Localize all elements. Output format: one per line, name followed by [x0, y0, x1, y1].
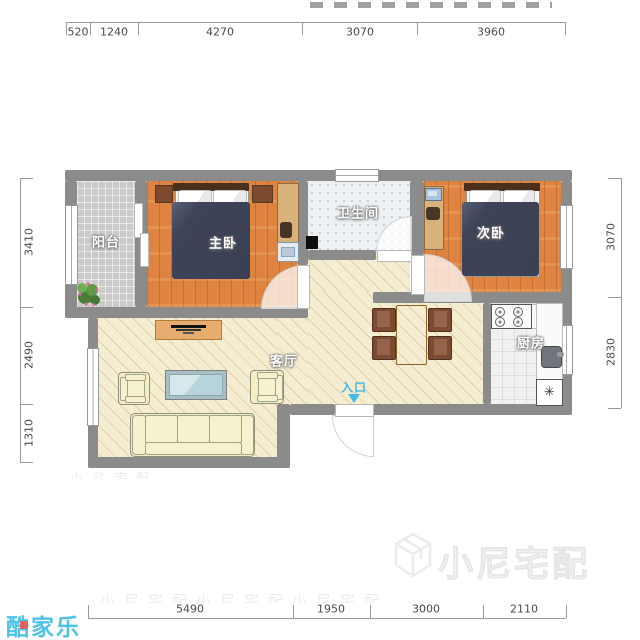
second-bedroom-label: 次卧: [477, 223, 505, 242]
kitchen-label: 厨房: [517, 333, 545, 352]
burner: [513, 307, 523, 317]
dim-tick: [293, 605, 294, 618]
armchair[interactable]: [118, 372, 150, 405]
dim-line-right: [621, 178, 622, 408]
dim-value: 1310: [23, 419, 36, 447]
sofa-cushion: [177, 415, 210, 443]
balcony-sliding-door-panel[interactable]: [140, 233, 149, 267]
computer-screen: [428, 191, 437, 196]
sofa-cushion: [209, 415, 242, 443]
dim-value: 3070: [605, 223, 618, 251]
bedroom2-desk-chair[interactable]: [426, 207, 440, 220]
dining-chair[interactable]: [428, 336, 452, 360]
chair-seat: [434, 311, 447, 327]
dim-tick: [88, 605, 89, 618]
dim-value: 3070: [346, 26, 374, 39]
dim-tick: [302, 22, 303, 35]
dim-tick: [20, 307, 33, 308]
bedroom2-door[interactable]: [411, 255, 425, 295]
dim-tick: [483, 605, 484, 618]
dim-value: 1240: [100, 26, 128, 39]
plant[interactable]: [76, 278, 102, 308]
master-bed[interactable]: [172, 183, 250, 279]
wall-living-bottom: [88, 457, 290, 468]
balcony-window[interactable]: [65, 205, 78, 285]
faucet: [557, 352, 564, 357]
tv-line: [176, 329, 201, 331]
dim-line-top: [66, 22, 565, 23]
bathroom-label: 卫生间: [337, 203, 379, 222]
dim-tick: [20, 178, 33, 179]
dim-value: 2830: [605, 338, 618, 366]
burner: [495, 317, 505, 327]
wall-kitchen-left: [483, 303, 491, 404]
bathroom-door[interactable]: [377, 250, 412, 262]
chair-seat: [434, 339, 447, 355]
wall-bottom-left-of-entry: [290, 404, 335, 415]
nightstand[interactable]: [155, 185, 173, 203]
chair-seat: [377, 311, 390, 327]
dim-value: 520: [68, 26, 89, 39]
overlay-watermark: 小尼宅配: [392, 530, 592, 582]
tv: [171, 325, 206, 328]
dim-tick: [566, 605, 567, 618]
burner: [495, 307, 505, 317]
cube-logo-icon: [392, 532, 434, 578]
dim-tick: [565, 22, 566, 35]
balcony-label: 阳台: [92, 232, 120, 251]
bathroom-window[interactable]: [335, 169, 379, 182]
armchair-arm: [125, 396, 146, 403]
brand-logo: 酷家乐: [6, 608, 81, 640]
entrance-door-swing: [332, 415, 374, 457]
overlay-watermark-text: 小尼宅配: [438, 536, 590, 587]
dim-tick: [608, 408, 621, 409]
dim-line-bottom: [88, 618, 566, 619]
nightstand[interactable]: [252, 185, 273, 203]
faint-watermark-row: 小尼宅配: [70, 468, 250, 479]
living-room-window[interactable]: [87, 348, 99, 426]
washing-machine[interactable]: [306, 236, 318, 249]
tv-base: [183, 332, 194, 334]
dim-tick: [370, 605, 371, 618]
dim-value: 4270: [206, 26, 234, 39]
master-desk-chair[interactable]: [280, 222, 292, 238]
master-bedroom-label: 主卧: [209, 233, 237, 252]
dim-tick: [608, 178, 621, 179]
wall-top: [65, 170, 572, 181]
coffee-table[interactable]: [165, 370, 227, 400]
dim-value: 3960: [477, 26, 505, 39]
armchair[interactable]: [250, 370, 284, 404]
faint-watermark-row: 小尼宅配小尼宅配小尼宅配: [100, 590, 530, 603]
sofa-back: [145, 442, 242, 455]
dim-value: 3000: [412, 603, 440, 616]
wall-bedroom2-bottom: [373, 292, 572, 303]
master-door[interactable]: [297, 265, 310, 309]
floor-plan-canvas: ✳: [0, 0, 640, 640]
entrance-arrow-icon: [348, 394, 360, 403]
chair-seat: [377, 339, 390, 355]
wall-bedroom2-left: [410, 181, 424, 255]
sofa-cushion: [145, 415, 178, 443]
dim-tick: [608, 297, 621, 298]
dresser-detail: [281, 247, 295, 257]
wall-bathroom-bottom: [308, 250, 376, 260]
refrigerator-symbol: ✳: [544, 385, 555, 400]
armchair-seat: [127, 380, 145, 397]
dim-value: 3410: [23, 228, 36, 256]
tv-stand[interactable]: [155, 320, 222, 340]
bedroom2-computer[interactable]: [425, 188, 442, 201]
dim-value: 2490: [23, 341, 36, 369]
dim-tick: [417, 22, 418, 35]
dim-tick: [20, 404, 33, 405]
living-room-label: 客厅: [270, 351, 298, 370]
glass-top: [169, 374, 223, 396]
refrigerator-box[interactable]: ✳: [536, 379, 563, 406]
sofa[interactable]: [130, 413, 255, 457]
armchair-seat: [258, 378, 276, 396]
armchair-arm: [257, 395, 278, 402]
dining-chair[interactable]: [428, 308, 452, 332]
dim-tick: [20, 462, 33, 463]
dim-value: 2110: [510, 603, 538, 616]
burner: [513, 317, 523, 327]
entrance-door[interactable]: [335, 404, 374, 417]
dining-chair[interactable]: [372, 336, 396, 360]
brand-logo-red-accent: [20, 621, 28, 629]
dim-value: 1950: [317, 603, 345, 616]
entrance-label: 入口: [341, 379, 367, 396]
dim-line-left: [20, 178, 21, 462]
wall-step-vertical: [277, 404, 290, 468]
dim-value: 5490: [176, 603, 204, 616]
cropped-text-artifact: [310, 2, 552, 8]
stove[interactable]: [491, 304, 532, 329]
master-dresser[interactable]: [277, 242, 299, 262]
dim-tick: [138, 22, 139, 35]
dining-chair[interactable]: [372, 308, 396, 332]
dim-tick: [90, 22, 91, 35]
bedroom2-window[interactable]: [560, 205, 573, 269]
dining-table[interactable]: [396, 305, 427, 365]
